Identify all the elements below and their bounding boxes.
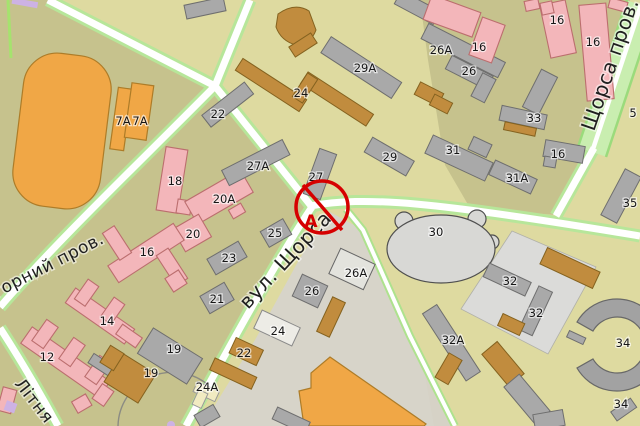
building-label: 26A [430,43,453,57]
building-label: 22 [237,346,252,360]
building-label: 33 [527,111,542,125]
map-viewport[interactable]: горний пров.Літнявул. ЩорсаЩорса пров. 7… [0,0,640,426]
building-label: 34 [616,336,631,350]
building-label: 30 [429,225,444,239]
building-label: 31 [446,143,461,157]
building-label: 21 [210,292,225,306]
building-label: 22 [211,107,226,121]
map-canvas[interactable]: горний пров.Літнявул. ЩорсаЩорса пров. 7… [0,0,640,426]
building-label: 29 [383,150,398,164]
building-label: 7A [115,114,130,128]
building-label: 14 [100,314,115,328]
building-label: 16 [550,13,565,27]
marker-letter: A [304,212,318,232]
building-label: 29A [354,61,377,75]
building-label: 20A [213,192,236,206]
building-label: 16 [472,40,487,54]
building-label: 19 [167,342,182,356]
building-label: 27A [247,159,270,173]
building-label: 24 [294,86,309,100]
building-label: 32A [442,333,465,347]
building-label: 26 [305,284,320,298]
building-label: 24A [196,380,219,394]
building-label: 16 [551,147,566,161]
building-label: 19 [144,366,159,380]
building-label: 25 [268,226,283,240]
building-label: 32 [529,306,544,320]
building-label: 35 [623,196,638,210]
building-label: 24 [271,324,286,338]
building-label: 23 [222,251,237,265]
building-label: 16 [586,35,601,49]
building-label: 12 [40,350,55,364]
building-label: 7A [132,114,147,128]
building-label: 32 [503,274,518,288]
building-label: 5 [629,106,636,120]
building-label: 18 [168,174,183,188]
building-label: 20 [186,227,201,241]
building-label: 26 [462,64,477,78]
building-label: 16 [140,245,155,259]
building-label: 34 [614,397,629,411]
building-label: 31A [506,171,529,185]
building-label: 26A [345,266,368,280]
